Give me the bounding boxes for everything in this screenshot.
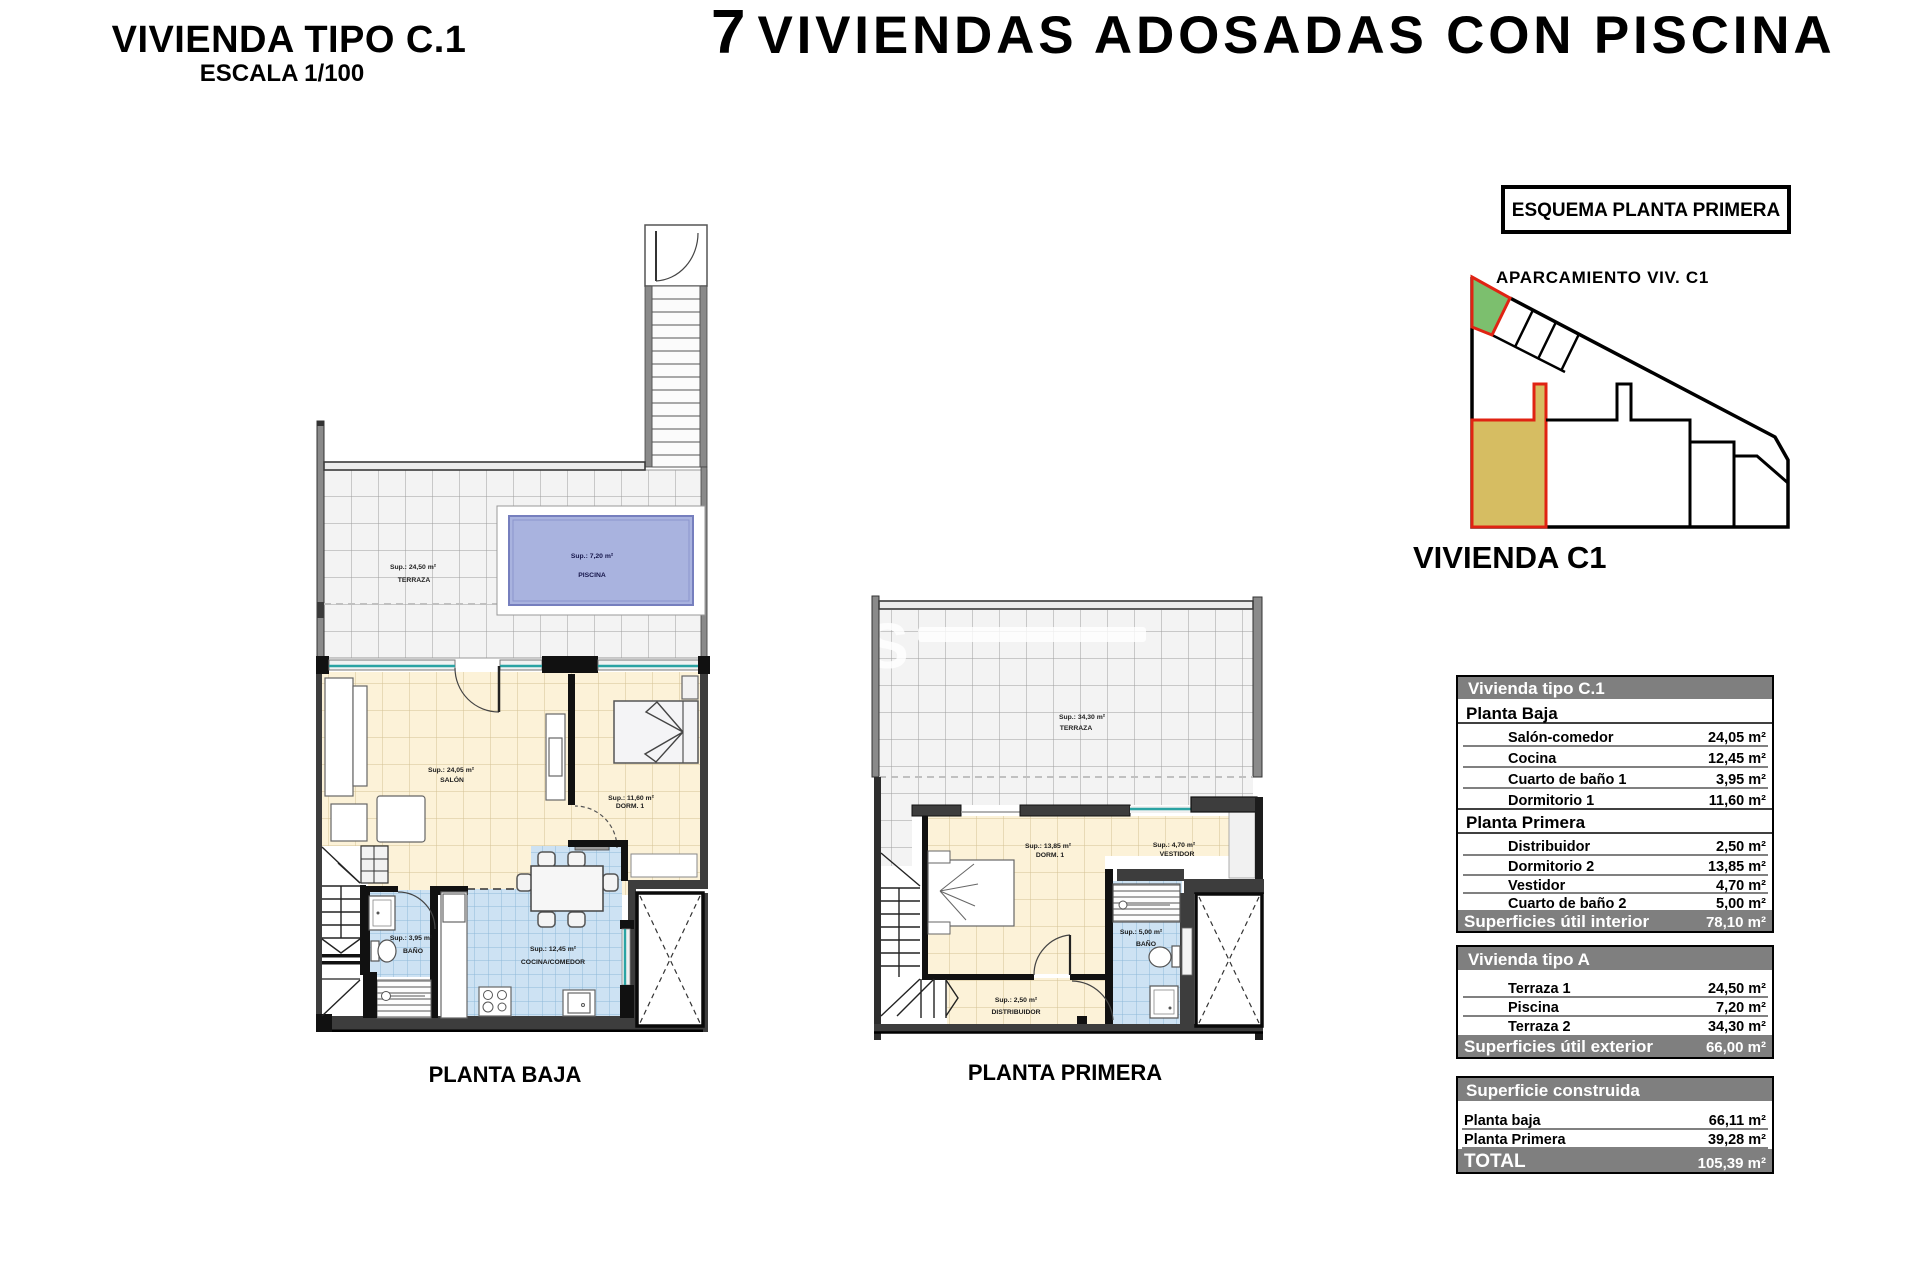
svg-text:78,10 m²: 78,10 m² [1706,914,1766,931]
svg-text:Cuarto de baño 1: Cuarto de baño 1 [1508,772,1626,788]
svg-text:Sup.: 13,85 m²: Sup.: 13,85 m² [1025,843,1072,850]
svg-text:66,11 m²: 66,11 m² [1709,1113,1766,1129]
svg-text:4,70 m²: 4,70 m² [1716,878,1766,894]
svg-text:24,05 m²: 24,05 m² [1708,730,1766,746]
svg-text:34,30 m²: 34,30 m² [1708,1019,1766,1035]
svg-text:Planta baja: Planta baja [1464,1113,1541,1129]
svg-text:SALÓN: SALÓN [440,775,464,784]
svg-text:Superficies útil exterior: Superficies útil exterior [1464,1037,1653,1056]
svg-text:Sup.: 12,45 m²: Sup.: 12,45 m² [530,946,577,953]
svg-text:Piscina: Piscina [1508,1000,1560,1016]
svg-text:VESTIDOR: VESTIDOR [1160,851,1195,858]
svg-text:ESCALA 1/100: ESCALA 1/100 [200,60,365,87]
svg-text:7VIVIENDAS ADOSADAS CON PISCIN: 7VIVIENDAS ADOSADAS CON PISCINA [711,0,1835,67]
svg-text:11,60 m²: 11,60 m² [1709,793,1766,809]
svg-text:Planta Primera: Planta Primera [1464,1132,1566,1148]
svg-text:Sup.: 5,00 m²: Sup.: 5,00 m² [1120,929,1163,936]
svg-text:DORM. 1: DORM. 1 [1036,852,1065,859]
svg-text:PLANTA PRIMERA: PLANTA PRIMERA [968,1060,1162,1085]
svg-text:Sup.: 24,05 m²: Sup.: 24,05 m² [428,767,475,774]
svg-text:TERRAZA: TERRAZA [1060,725,1093,732]
svg-text:13,85 m²: 13,85 m² [1708,859,1766,875]
svg-text:BAÑO: BAÑO [1136,939,1156,948]
svg-text:2,50 m²: 2,50 m² [1716,839,1766,855]
svg-text:Superficies útil interior: Superficies útil interior [1464,912,1650,931]
svg-text:Sup.: 7,20 m²: Sup.: 7,20 m² [571,553,614,560]
svg-text:39,28 m²: 39,28 m² [1708,1132,1766,1148]
svg-text:DORM. 1: DORM. 1 [616,803,645,810]
svg-text:COCINA/COMEDOR: COCINA/COMEDOR [521,959,585,966]
svg-text:APARCAMIENTO VIV. C1: APARCAMIENTO VIV. C1 [1496,268,1709,287]
svg-text:Planta Primera: Planta Primera [1466,813,1586,832]
svg-text:Vestidor: Vestidor [1508,878,1566,894]
svg-text:24,50 m²: 24,50 m² [1708,981,1766,997]
svg-text:7,20 m²: 7,20 m² [1716,1000,1766,1016]
svg-text:105,39 m²: 105,39 m² [1698,1155,1766,1172]
svg-text:DISTRIBUIDOR: DISTRIBUIDOR [991,1009,1040,1016]
svg-text:Distribuidor: Distribuidor [1508,839,1591,855]
svg-text:TOTAL: TOTAL [1464,1151,1526,1172]
svg-text:TERRAZA: TERRAZA [398,577,431,584]
svg-text:ESQUEMA PLANTA PRIMERA: ESQUEMA PLANTA PRIMERA [1512,200,1781,221]
svg-text:PISCINA: PISCINA [578,572,606,579]
svg-text:Dormitorio 1: Dormitorio 1 [1508,793,1594,809]
svg-text:Cocina: Cocina [1508,751,1557,767]
svg-text:Salón-comedor: Salón-comedor [1508,730,1614,746]
svg-text:Sup.: 2,50 m²: Sup.: 2,50 m² [995,997,1038,1004]
svg-text:Superficie construida: Superficie construida [1466,1081,1640,1100]
svg-text:Sup.: 34,30 m²: Sup.: 34,30 m² [1059,714,1106,721]
svg-text:Sup.: 3,95 m²: Sup.: 3,95 m² [390,935,433,942]
svg-text:Vivienda tipo A: Vivienda tipo A [1468,950,1590,969]
svg-text:5,00 m²: 5,00 m² [1716,896,1766,912]
svg-text:VIVIENDA TIPO C.1: VIVIENDA TIPO C.1 [112,19,467,61]
svg-text:Sup.: 24,50 m²: Sup.: 24,50 m² [390,564,437,571]
svg-text:Terraza 1: Terraza 1 [1508,981,1571,997]
svg-text:Sup.: 11,60 m²: Sup.: 11,60 m² [608,795,654,802]
svg-text:Sup.: 4,70 m²: Sup.: 4,70 m² [1153,842,1196,849]
svg-text:VIVIENDA C1: VIVIENDA C1 [1413,540,1607,575]
svg-text:Planta Baja: Planta Baja [1466,704,1558,723]
svg-text:PLANTA BAJA: PLANTA BAJA [429,1062,582,1087]
svg-text:Terraza 2: Terraza 2 [1508,1019,1571,1035]
svg-text:12,45 m²: 12,45 m² [1708,751,1766,767]
svg-text:66,00 m²: 66,00 m² [1706,1039,1766,1056]
svg-text:BAÑO: BAÑO [403,946,423,955]
svg-text:Cuarto de baño 2: Cuarto de baño 2 [1508,896,1626,912]
svg-text:Dormitorio 2: Dormitorio 2 [1508,859,1594,875]
svg-text:3,95 m²: 3,95 m² [1716,772,1766,788]
svg-text:Vivienda tipo C.1: Vivienda tipo C.1 [1468,679,1605,698]
